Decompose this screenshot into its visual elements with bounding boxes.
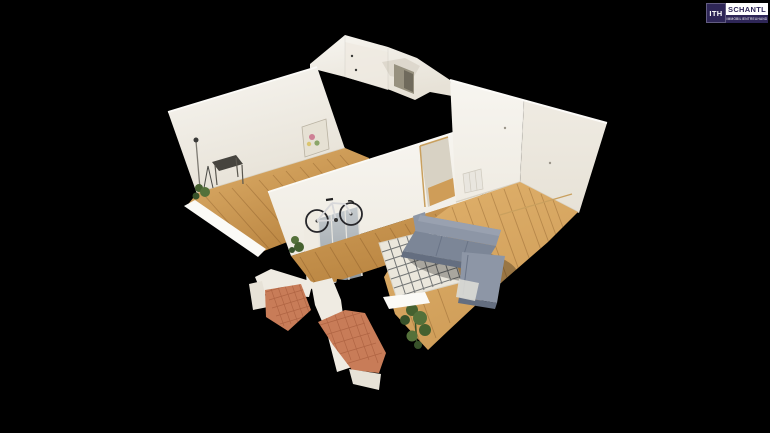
door-hardware-dot [355, 69, 357, 71]
wall-outlet [549, 162, 551, 164]
door-hardware-dot [351, 55, 353, 57]
terracotta-tiles-main [318, 310, 386, 373]
bike-saddle [326, 199, 333, 200]
brand-logo: ITH SCHANTL IMMOBILIENTREUHAND [706, 3, 768, 23]
bike-crank [334, 218, 338, 222]
bathroom-block [310, 35, 452, 100]
logo-tagline-text: IMMOBILIENTREUHAND [726, 15, 768, 23]
wall-outlet [504, 127, 506, 129]
tour-viewer-stage: ITH SCHANTL IMMOBILIENTREUHAND [0, 0, 770, 433]
dollhouse-3d-view[interactable] [0, 0, 770, 433]
logo-ith-icon: ITH [706, 3, 726, 23]
logo-brand-text: SCHANTL [726, 3, 768, 15]
